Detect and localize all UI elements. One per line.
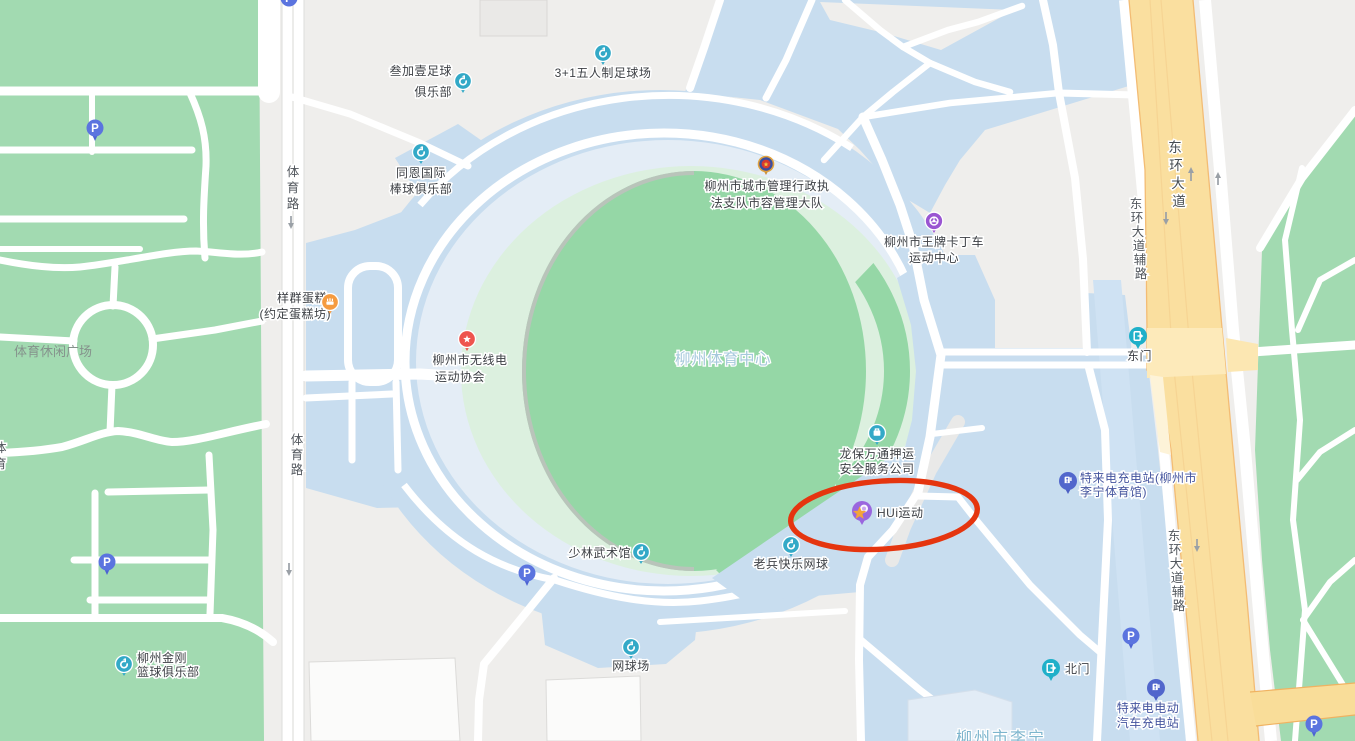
svg-text:少林武术馆: 少林武术馆: [568, 545, 631, 560]
svg-text:棒球俱乐部: 棒球俱乐部: [390, 181, 453, 196]
svg-text:老兵快乐网球: 老兵快乐网球: [753, 557, 828, 571]
svg-text:同恩国际: 同恩国际: [396, 166, 446, 180]
svg-text:网球场: 网球场: [612, 659, 650, 673]
svg-text:P: P: [285, 0, 293, 5]
svg-text:(约定蛋糕坊): (约定蛋糕坊): [260, 306, 332, 321]
svg-text:3+1五人制足球场: 3+1五人制足球场: [555, 66, 652, 80]
svg-text:叁加壹足球: 叁加壹足球: [389, 63, 452, 78]
svg-text:体育路: 体育路: [291, 433, 304, 477]
svg-text:运动协会: 运动协会: [435, 369, 485, 384]
svg-text:P: P: [523, 568, 531, 580]
svg-text:特来电充电站(柳州市: 特来电充电站(柳州市: [1080, 470, 1197, 485]
svg-text:P: P: [1127, 631, 1135, 643]
svg-text:P: P: [1310, 719, 1318, 731]
svg-text:特来电电动: 特来电电动: [1117, 700, 1180, 715]
svg-text:柳州金刚: 柳州金刚: [137, 650, 187, 665]
svg-text:柳州市王牌卡丁车: 柳州市王牌卡丁车: [884, 234, 984, 249]
svg-text:样群蛋糕: 样群蛋糕: [277, 290, 327, 305]
svg-text:体育休闲广场: 体育休闲广场: [14, 344, 92, 359]
svg-text:篮球俱乐部: 篮球俱乐部: [137, 664, 200, 679]
svg-text:俱乐部: 俱乐部: [414, 84, 452, 99]
svg-text:柳州市城市管理行政执: 柳州市城市管理行政执: [704, 178, 829, 193]
svg-text:柳州市李宁: 柳州市李宁: [956, 729, 1046, 741]
svg-text:东门: 东门: [1127, 348, 1152, 363]
svg-text:运动中心: 运动中心: [909, 250, 959, 265]
svg-text:李宁体育馆): 李宁体育馆): [1080, 484, 1147, 499]
svg-text:HUi运动: HUi运动: [877, 506, 924, 520]
svg-text:柳州体育中心: 柳州体育中心: [675, 350, 771, 368]
svg-text:法支队市容管理大队: 法支队市容管理大队: [711, 195, 824, 210]
svg-text:体育路: 体育路: [287, 165, 300, 211]
svg-text:北门: 北门: [1065, 661, 1090, 676]
svg-text:柳州市无线电: 柳州市无线电: [432, 352, 507, 367]
svg-text:P: P: [103, 557, 111, 569]
svg-text:汽车充电站: 汽车充电站: [1117, 715, 1180, 730]
svg-text:龙保万通押运: 龙保万通押运: [839, 447, 914, 461]
svg-text:P: P: [91, 123, 99, 135]
svg-text:安全服务公司: 安全服务公司: [839, 461, 914, 476]
